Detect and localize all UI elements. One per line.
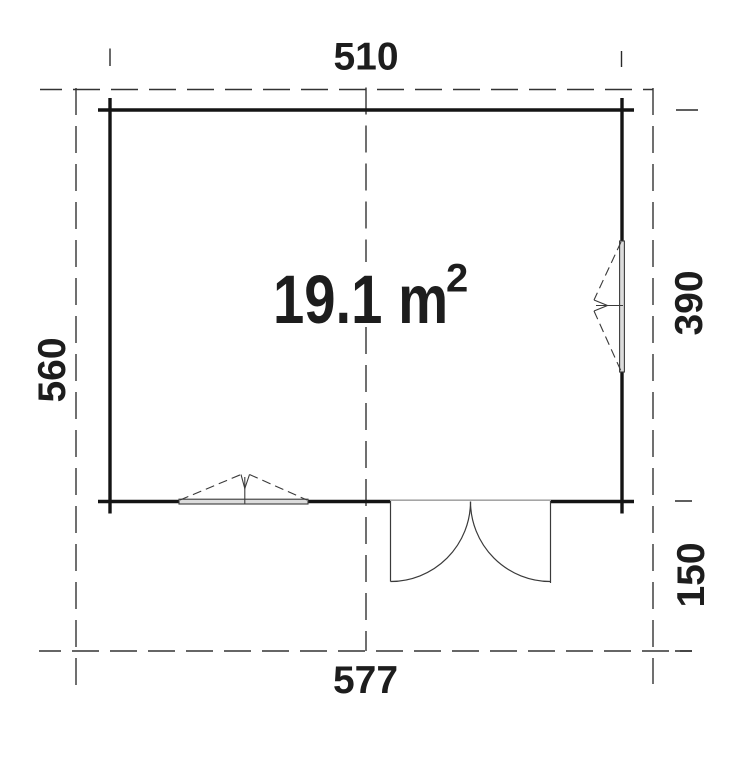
svg-text:390: 390 (668, 270, 711, 335)
svg-text:577: 577 (333, 659, 398, 702)
svg-text:19.1 m: 19.1 m (273, 262, 448, 339)
svg-text:2: 2 (446, 257, 468, 301)
svg-text:560: 560 (31, 337, 74, 402)
svg-text:510: 510 (333, 36, 398, 79)
svg-text:150: 150 (670, 542, 713, 607)
